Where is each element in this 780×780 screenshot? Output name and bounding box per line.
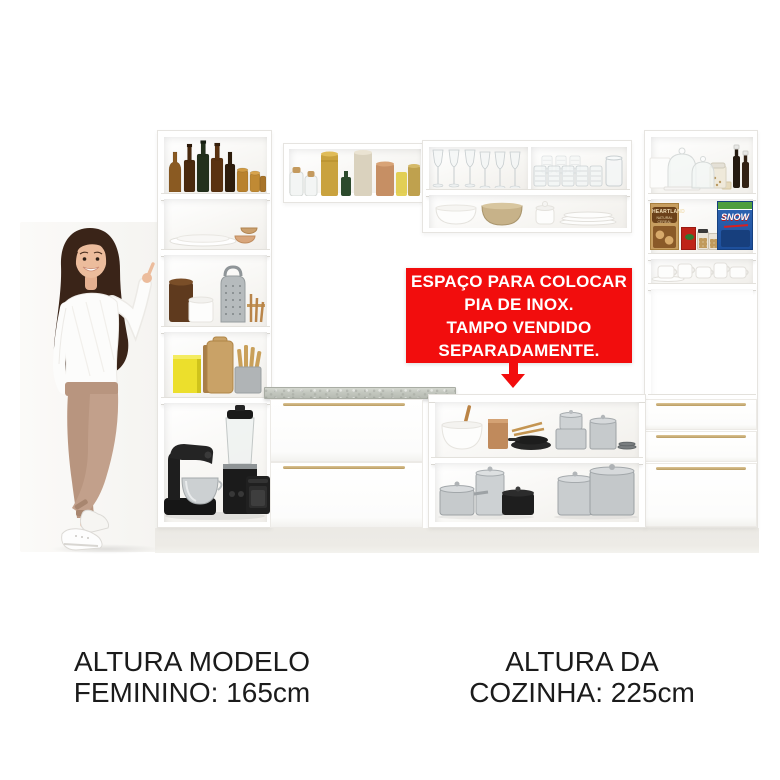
model-photo bbox=[24, 226, 160, 556]
amber-bottles bbox=[163, 140, 266, 192]
snow-cookie-art bbox=[721, 230, 750, 247]
snow-top-band bbox=[718, 202, 752, 210]
coffee-pack bbox=[681, 227, 696, 250]
banner-line-4: SEPARADAMENTE. bbox=[406, 339, 632, 362]
heartland-brand-text: HEARTLAND bbox=[652, 209, 677, 215]
snow-swoosh bbox=[724, 224, 748, 228]
jar-lid bbox=[698, 229, 708, 233]
cookware-upper bbox=[436, 403, 638, 455]
base-cabinet-drawer-1 bbox=[270, 399, 423, 462]
drawer-handle bbox=[283, 403, 405, 406]
banner-line-3: TAMPO VENDIDO bbox=[406, 316, 632, 339]
platter-and-bowls bbox=[163, 198, 266, 248]
drawer-handle bbox=[656, 467, 746, 470]
arrow-down-head bbox=[501, 374, 525, 388]
cookware-lower bbox=[436, 463, 638, 520]
white-dishes-gold-bowl bbox=[428, 192, 626, 226]
model-height-caption: ALTURA MODELO FEMININO: 165cm bbox=[32, 646, 352, 708]
kitchen-height-caption: ALTURA DA COZINHA: 225cm bbox=[422, 646, 742, 708]
cutting-boards-utensils bbox=[163, 331, 266, 396]
canister-grater-set bbox=[163, 254, 266, 325]
banner-line-1: ESPAÇO PARA COLOCAR bbox=[406, 270, 632, 293]
cereal-box-snow: SNOW bbox=[717, 201, 753, 250]
jar-cookies bbox=[699, 238, 707, 248]
glass-domes-oil-bottles bbox=[648, 136, 754, 192]
drawer-handle bbox=[656, 403, 746, 406]
kitchen-height-line-1: ALTURA DA bbox=[422, 646, 742, 677]
snow-brand-text: SNOW bbox=[718, 212, 752, 222]
heartland-cookie-art bbox=[653, 226, 676, 248]
kitchen-canisters bbox=[288, 150, 420, 196]
cereal-box-heartland: HEARTLAND NATURAL CEREAL bbox=[650, 203, 679, 250]
kitchen-plinth bbox=[155, 528, 759, 553]
jar-cookies bbox=[710, 239, 717, 248]
drawer-handle bbox=[656, 435, 746, 438]
stand-mixer-blender-coffee-maker bbox=[160, 402, 270, 521]
drawer-handle bbox=[283, 466, 405, 469]
heartland-label: HEARTLAND NATURAL CEREAL bbox=[652, 207, 677, 223]
banner-line-2: PIA DE INOX. bbox=[406, 293, 632, 316]
right-cabinet-door bbox=[645, 463, 757, 527]
model-height-line-1: ALTURA MODELO bbox=[32, 646, 352, 677]
coffee-pack-logo bbox=[685, 234, 694, 240]
product-image: HEARTLAND NATURAL CEREAL SNOW bbox=[0, 0, 780, 780]
right-cabinet-open-space bbox=[651, 289, 753, 394]
white-cups bbox=[648, 258, 754, 282]
model-height-line-2: FEMININO: 165cm bbox=[32, 677, 352, 708]
heartland-subtitle-text: NATURAL CEREAL bbox=[652, 216, 677, 224]
base-cabinet-drawer-2 bbox=[270, 462, 423, 528]
drinking-glasses bbox=[530, 146, 626, 188]
sink-notice-banner: ESPAÇO PARA COLOCAR PIA DE INOX. TAMPO V… bbox=[406, 268, 632, 363]
wine-glasses bbox=[428, 146, 527, 188]
kitchen-height-line-2: COZINHA: 225cm bbox=[422, 677, 742, 708]
